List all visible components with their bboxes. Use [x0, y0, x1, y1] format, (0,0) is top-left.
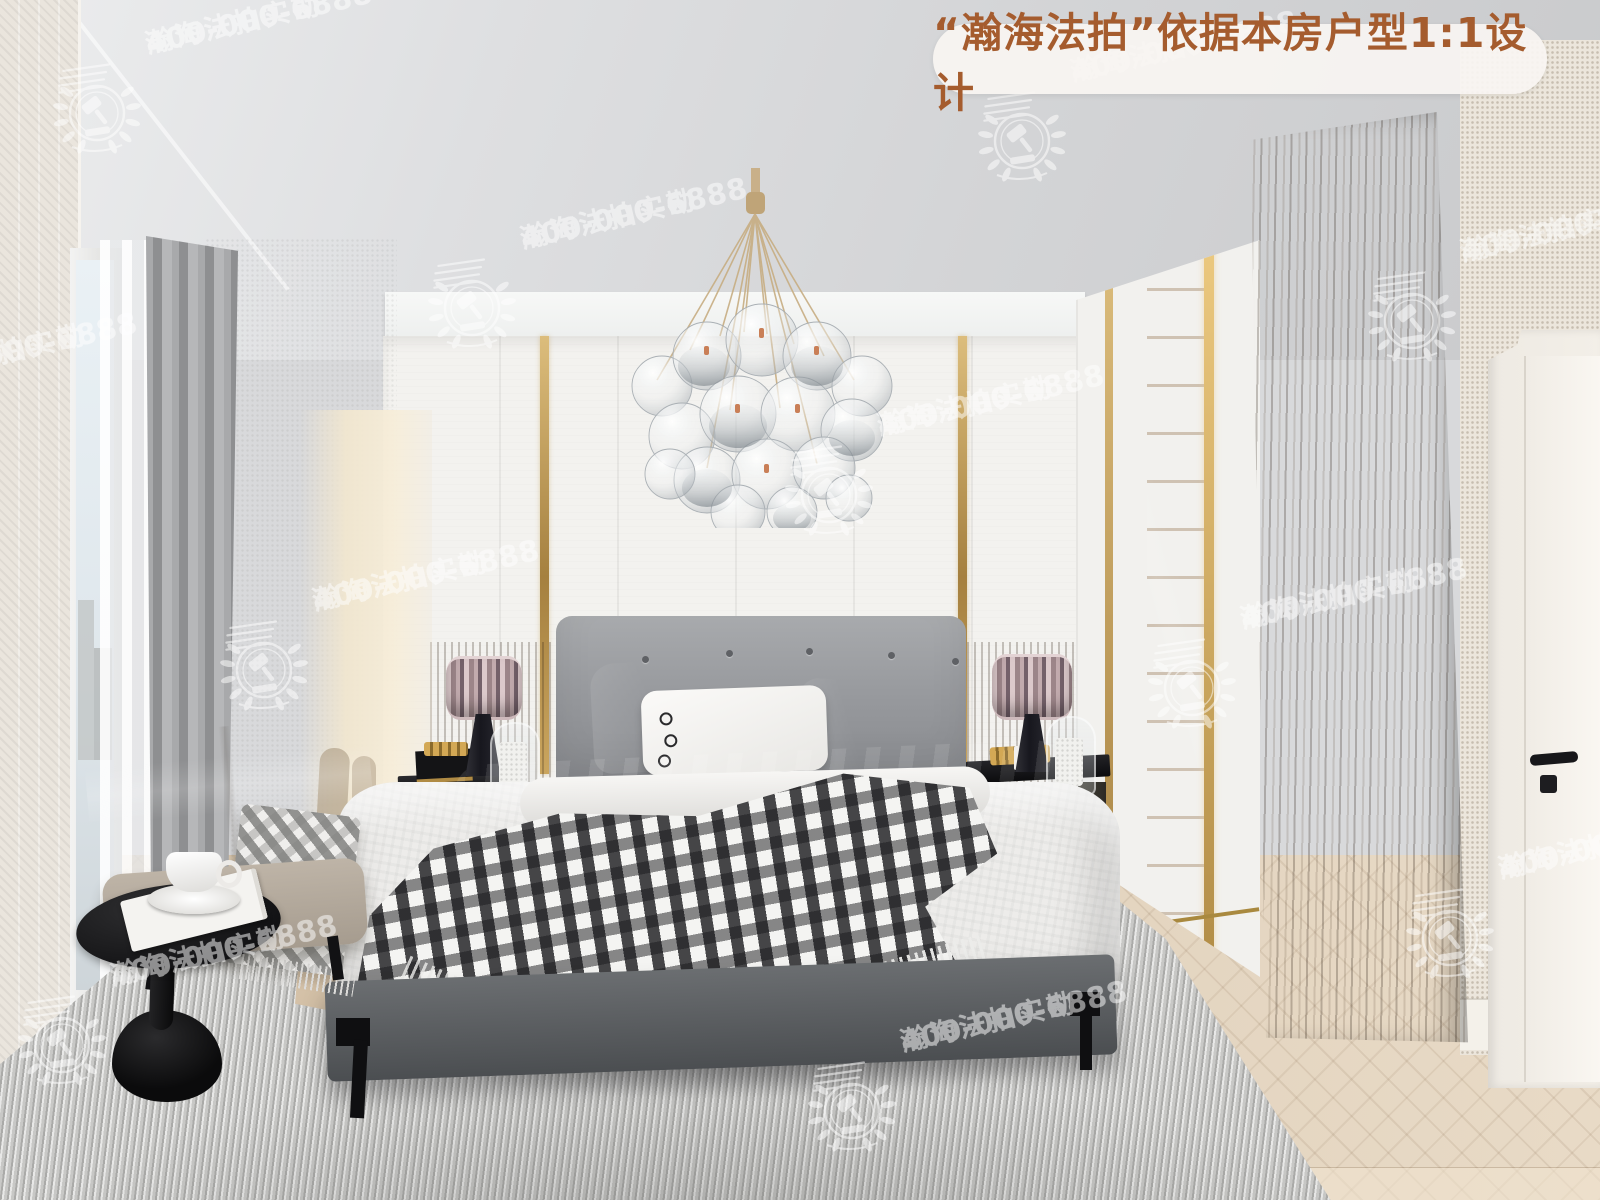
promo-banner: “瀚海法拍”依据本房户型1:1设计 — [933, 24, 1547, 94]
table-lamp-left-shade — [446, 656, 522, 720]
table-lamp-right-shade — [992, 654, 1072, 720]
door-lock-rosette — [1540, 775, 1557, 793]
coffee-cup-handle — [216, 860, 242, 888]
bubble-chandelier — [612, 168, 912, 528]
white-door — [1524, 356, 1600, 1082]
wood-cabinet-column — [1246, 112, 1468, 1047]
promo-banner-text: “瀚海法拍”依据本房户型1:1设计 — [933, 0, 1547, 119]
wardrobe-gold-handle-strip — [1204, 240, 1214, 992]
bedroom-photo: TJ — [0, 0, 1600, 1200]
wardrobe-smoked-glass-door — [1147, 240, 1206, 992]
window-building-silhouette — [78, 600, 94, 760]
left-wallpaper — [0, 0, 81, 1135]
bed-leg — [1080, 1012, 1092, 1070]
gold-perfume-bottles-left — [424, 742, 468, 756]
coffee-cup — [166, 852, 222, 892]
